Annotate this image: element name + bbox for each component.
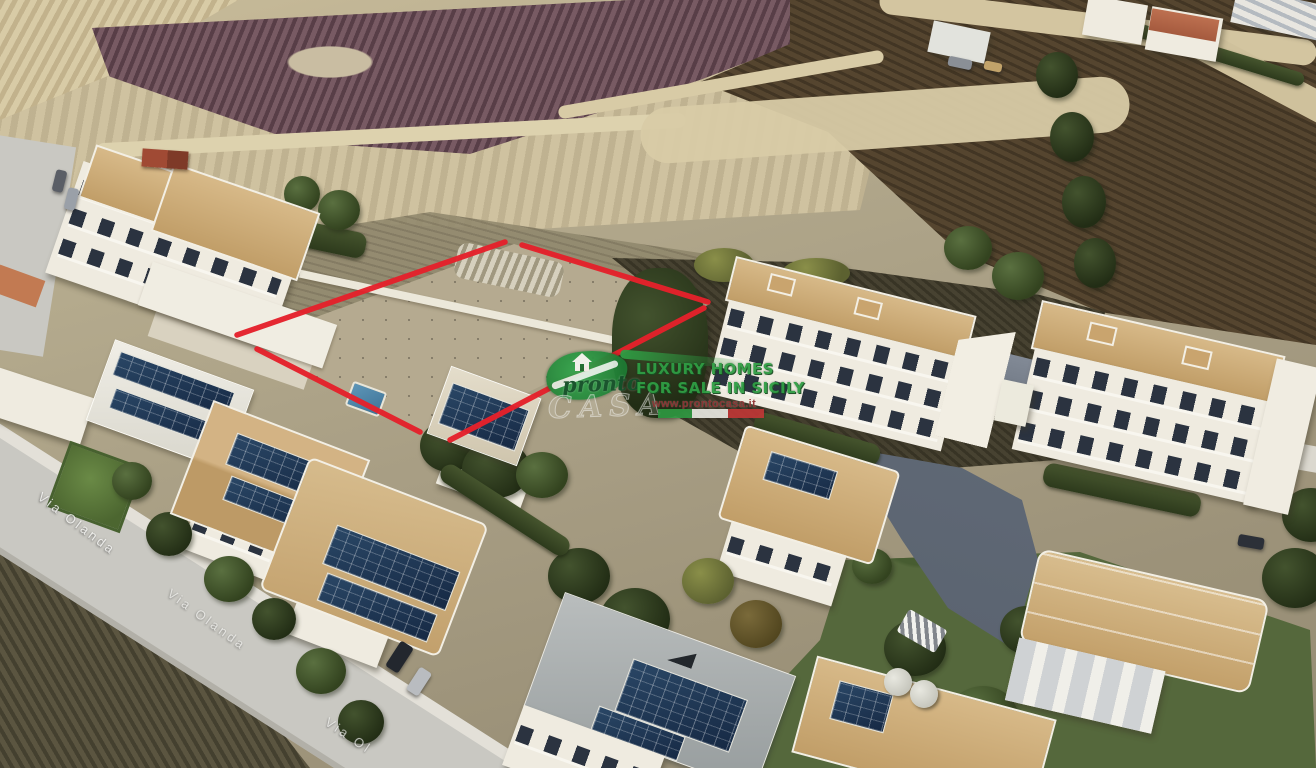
house-icon [574,353,590,371]
boundary-line-bottomleft [257,349,420,432]
watermark-line2: FOR SALE IN SICILY [636,379,805,397]
boundary-line-topright [522,245,708,302]
italy-flag-bar [658,409,764,418]
watermark-line1: LUXURY HOMES [636,360,774,378]
watermark: pronto CASA LUXURY HOMES FOR SALE IN SIC… [540,345,800,430]
house-door [580,364,584,371]
boundary-line-topleft [237,242,505,335]
listing-aerial-photo: Via Olanda Via Olanda Via Ol pronto CASA… [0,0,1316,768]
